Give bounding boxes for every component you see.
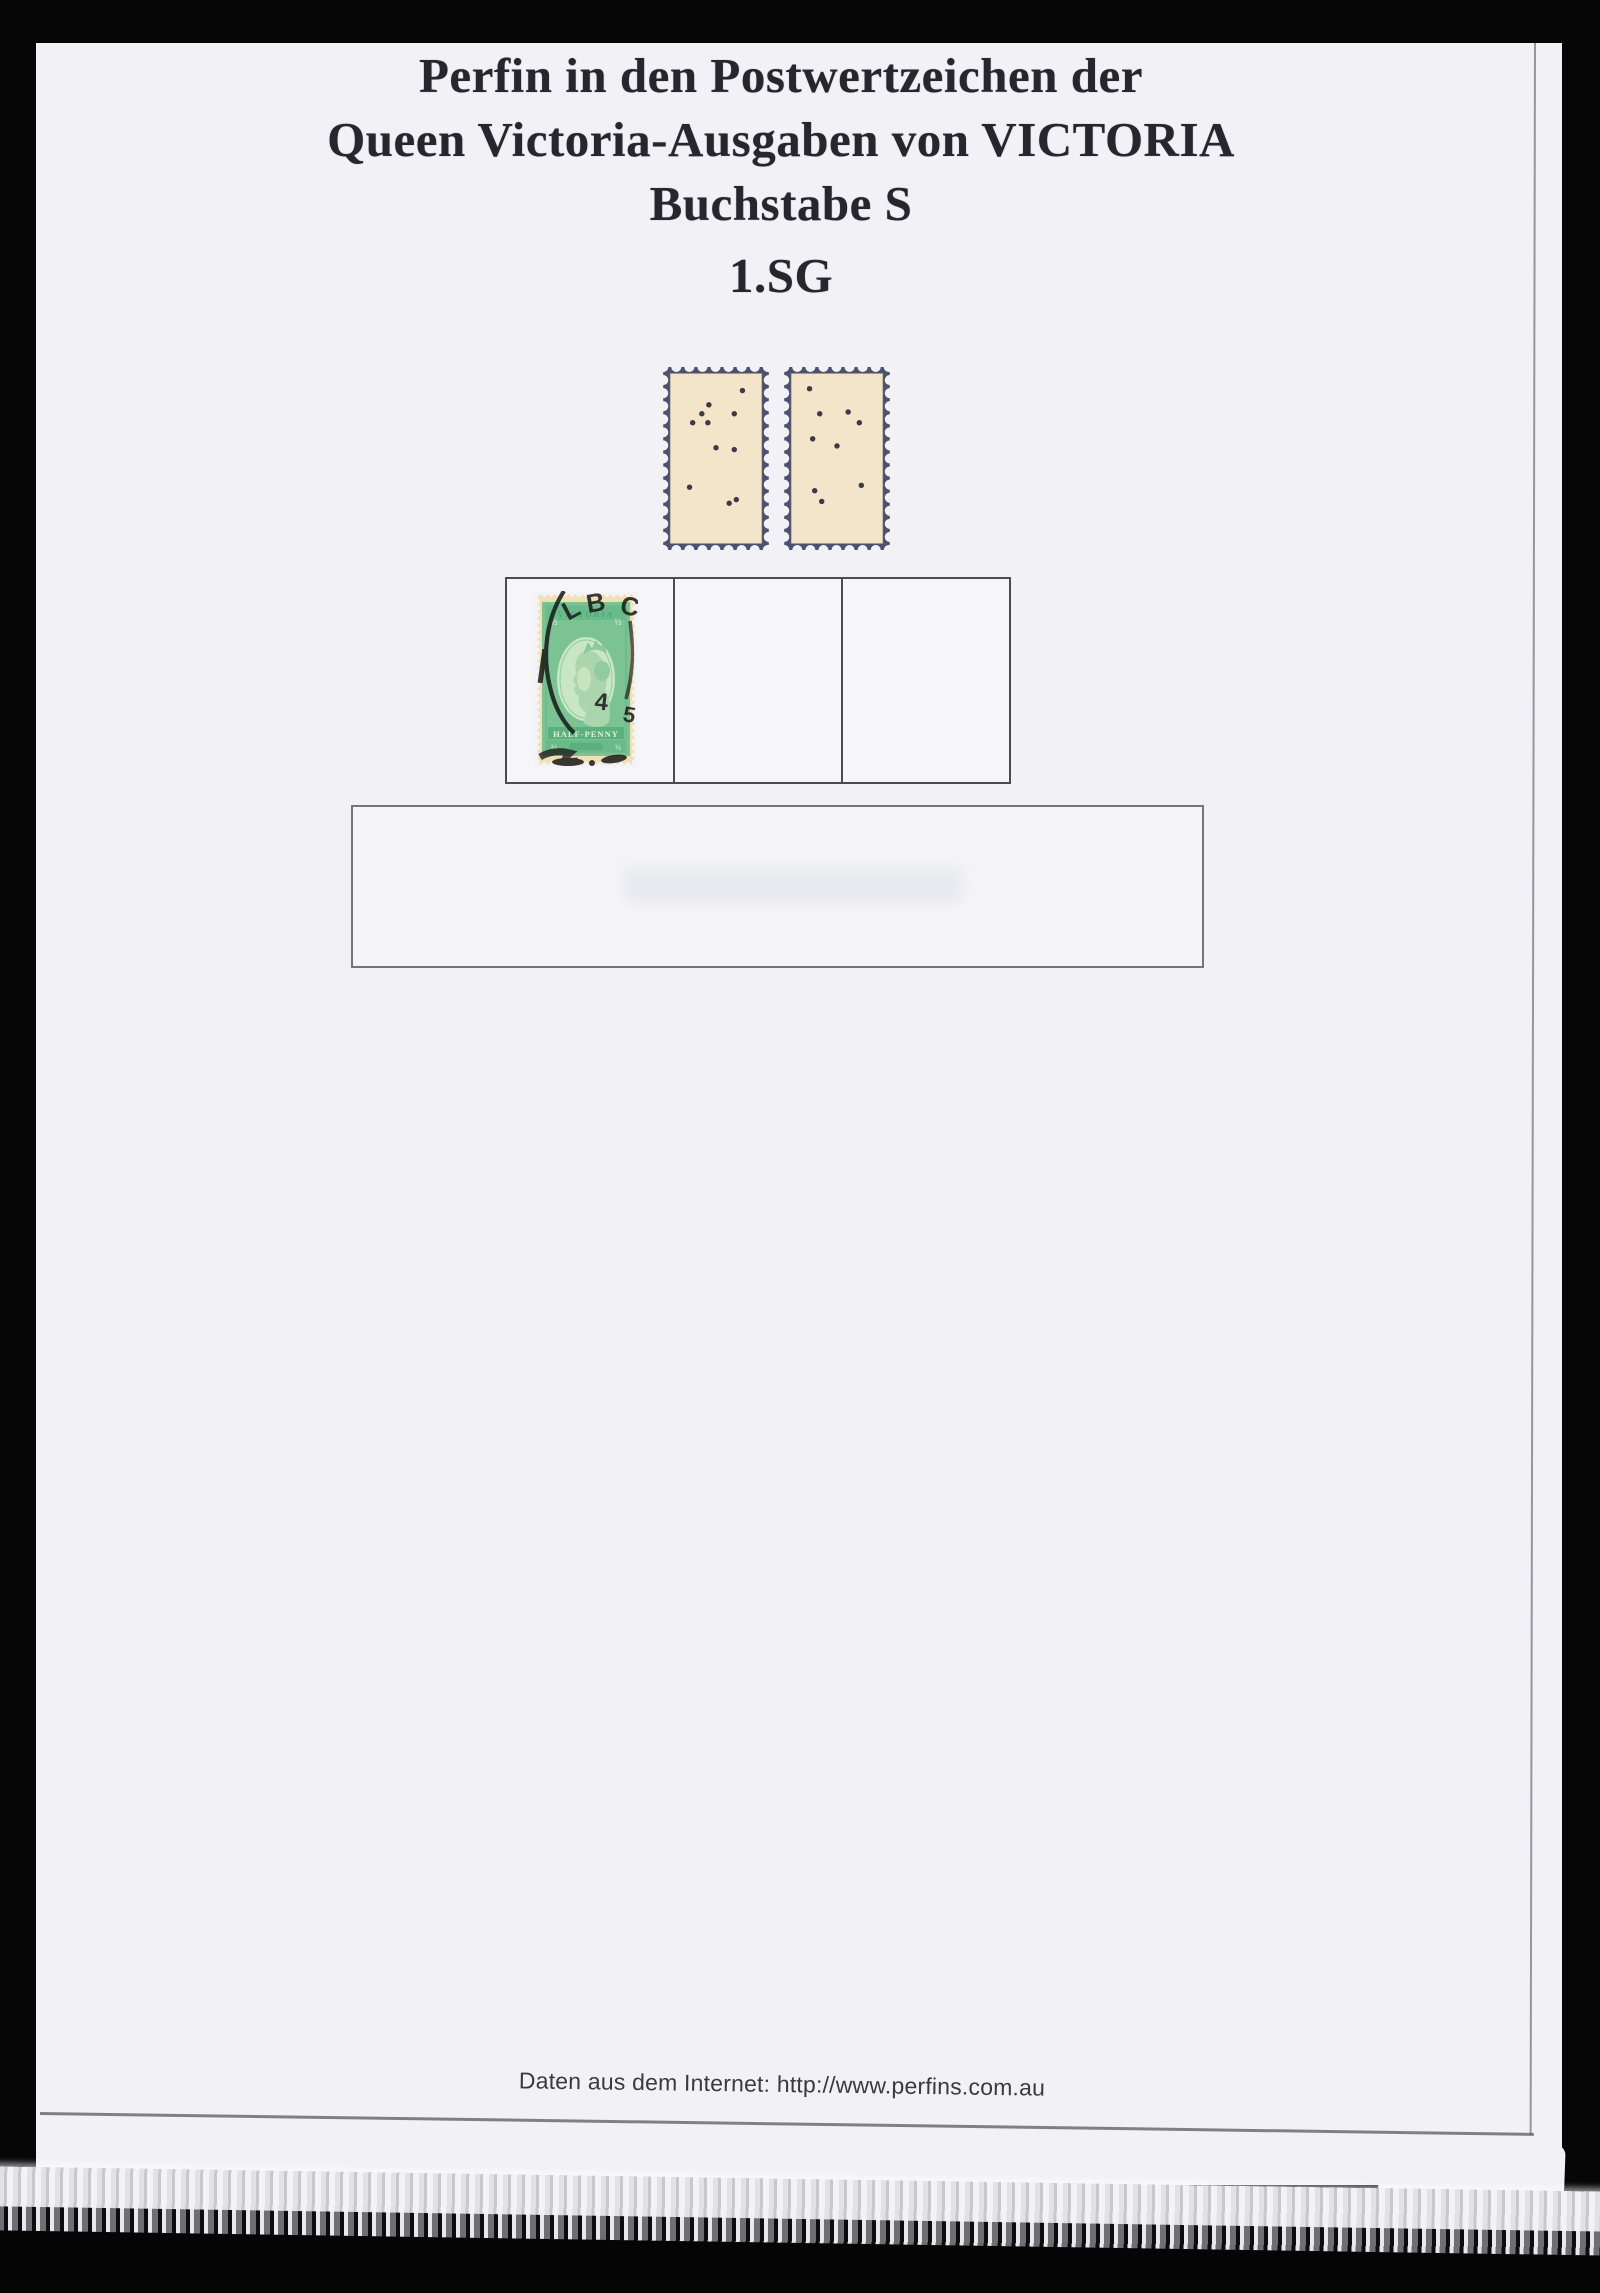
page-title: Perfin in den Postwertzeichen der Queen … — [18, 44, 1544, 308]
page-border-line-bottom — [40, 2112, 1534, 2136]
page-border-line-right — [1530, 43, 1536, 2135]
show-through-smudge — [623, 867, 963, 903]
title-line-2: Queen Victoria-Ausgaben von VICTORIA — [18, 108, 1544, 172]
description-box — [351, 805, 1204, 968]
svg-text:HALF-PENNY: HALF-PENNY — [553, 729, 619, 739]
queen-victoria-half-penny-stamp: VICTORIA½½HALF-PENNY½½LBC45 — [534, 591, 638, 768]
stamp-mount-box-3 — [841, 579, 1009, 782]
title-line-4: 1.SG — [18, 244, 1544, 308]
album-page: Perfin in den Postwertzeichen der Queen … — [36, 43, 1562, 2185]
title-line-3: Buchstabe S — [18, 172, 1544, 236]
scanned-album-photo: Perfin in den Postwertzeichen der Queen … — [0, 0, 1600, 2293]
perfin-stamp-back-left — [663, 367, 769, 550]
perfin-stamp-back-right — [784, 367, 890, 550]
stamp-mount-box-2 — [673, 579, 841, 782]
title-line-1: Perfin in den Postwertzeichen der — [18, 44, 1544, 108]
footer-source-text: Daten aus dem Internet: http://www.perfi… — [19, 2060, 1545, 2108]
perfin-stamps-row — [663, 367, 933, 550]
svg-text:½: ½ — [615, 743, 621, 752]
